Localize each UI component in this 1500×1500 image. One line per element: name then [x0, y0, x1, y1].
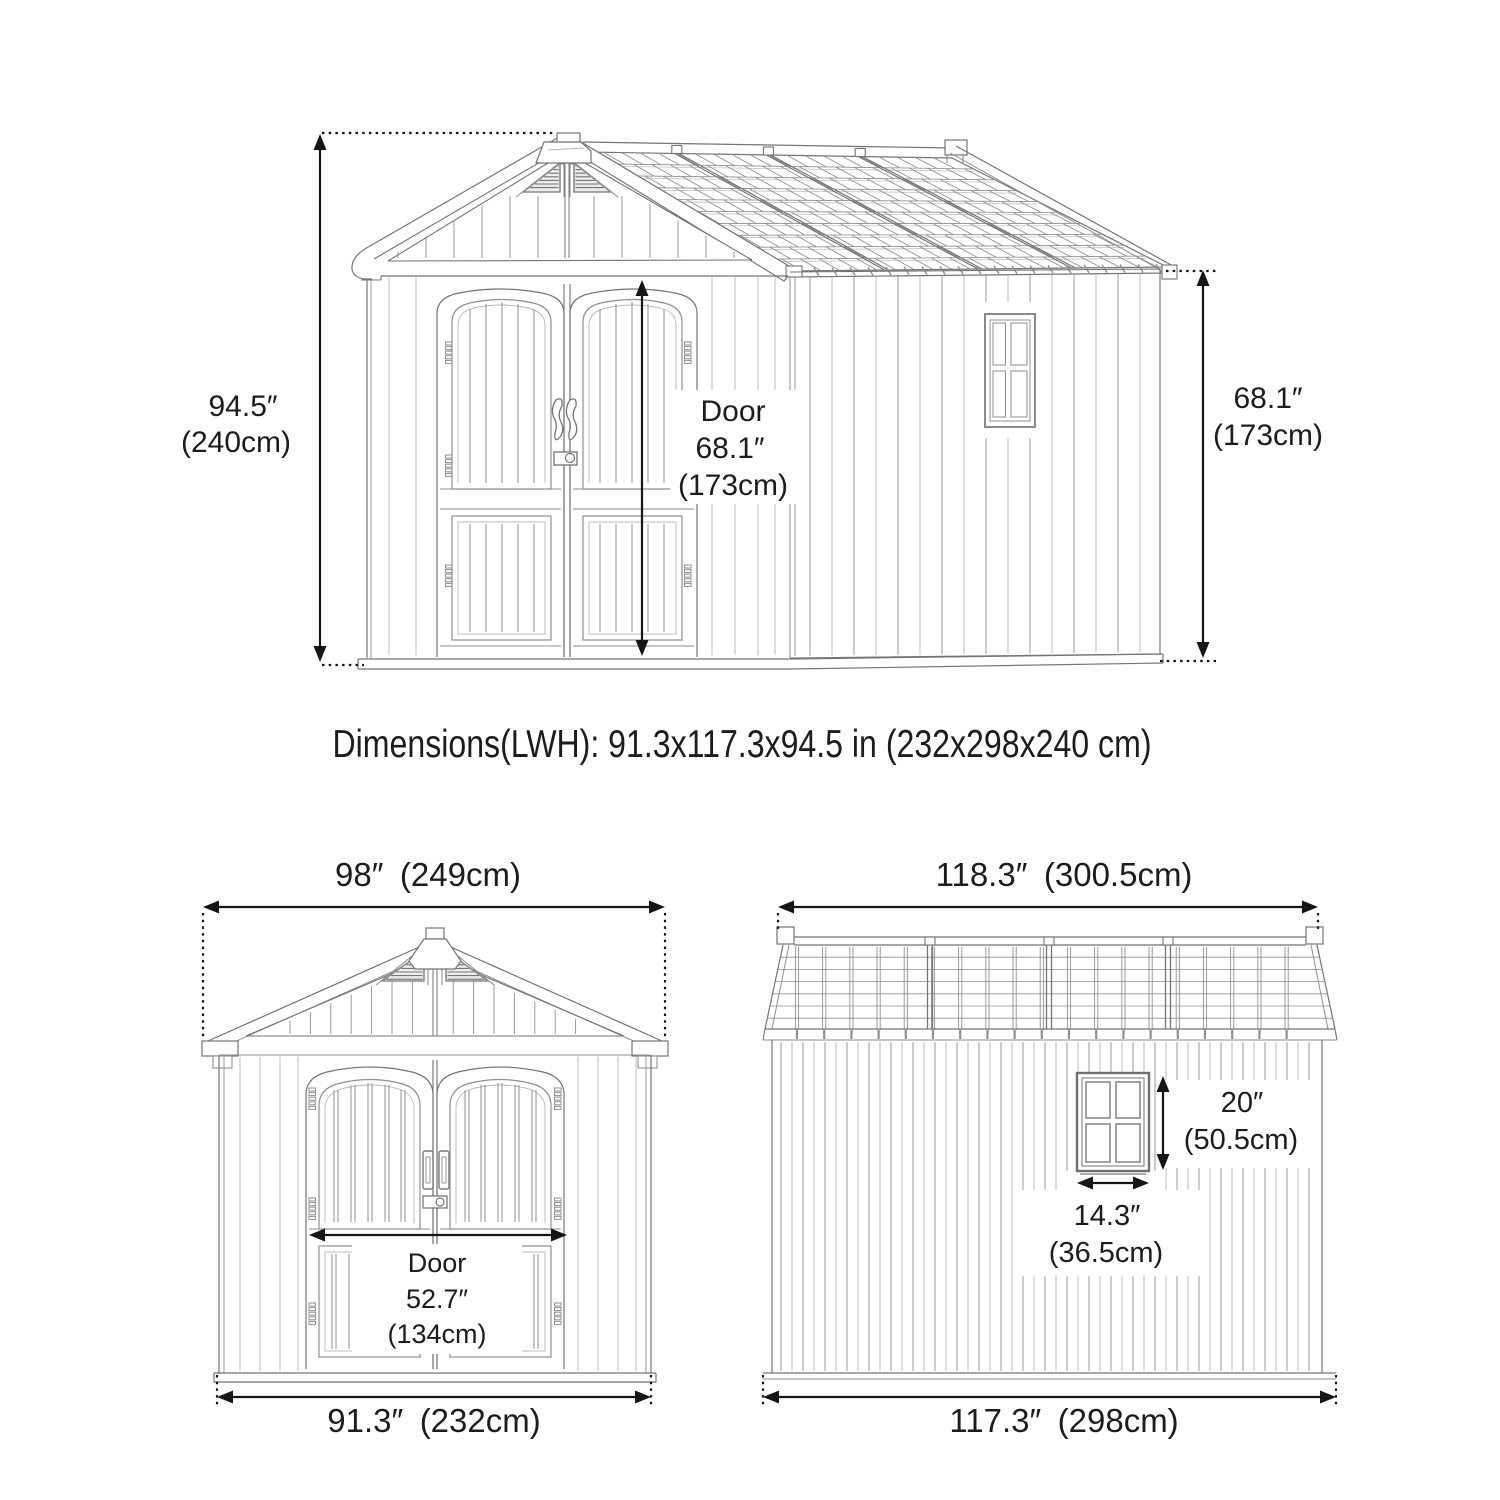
svg-text:(173cm): (173cm) [1213, 419, 1323, 452]
svg-text:117.3″ (298cm): 117.3″ (298cm) [949, 1402, 1178, 1439]
svg-text:Door: Door [408, 1248, 467, 1278]
svg-text:(240cm): (240cm) [181, 426, 291, 459]
svg-text:52.7″: 52.7″ [406, 1284, 469, 1314]
svg-text:(36.5cm): (36.5cm) [1049, 1237, 1163, 1269]
svg-text:Dimensions(LWH): 91.3x117.3x94: Dimensions(LWH): 91.3x117.3x94.5 in (232… [333, 723, 1152, 766]
svg-text:(50.5cm): (50.5cm) [1184, 1124, 1298, 1156]
svg-text:(173cm): (173cm) [678, 469, 788, 502]
svg-text:94.5″: 94.5″ [208, 390, 277, 423]
svg-text:Door: Door [700, 395, 765, 428]
svg-text:68.1″: 68.1″ [695, 432, 764, 465]
svg-text:20″: 20″ [1221, 1087, 1264, 1119]
svg-text:118.3″ (300.5cm): 118.3″ (300.5cm) [936, 856, 1193, 893]
svg-text:98″ (249cm): 98″ (249cm) [335, 856, 521, 893]
svg-text:14.3″: 14.3″ [1074, 1200, 1141, 1232]
svg-text:91.3″ (232cm): 91.3″ (232cm) [327, 1402, 540, 1439]
svg-text:68.1″: 68.1″ [1233, 382, 1302, 415]
svg-text:(134cm): (134cm) [387, 1319, 486, 1349]
